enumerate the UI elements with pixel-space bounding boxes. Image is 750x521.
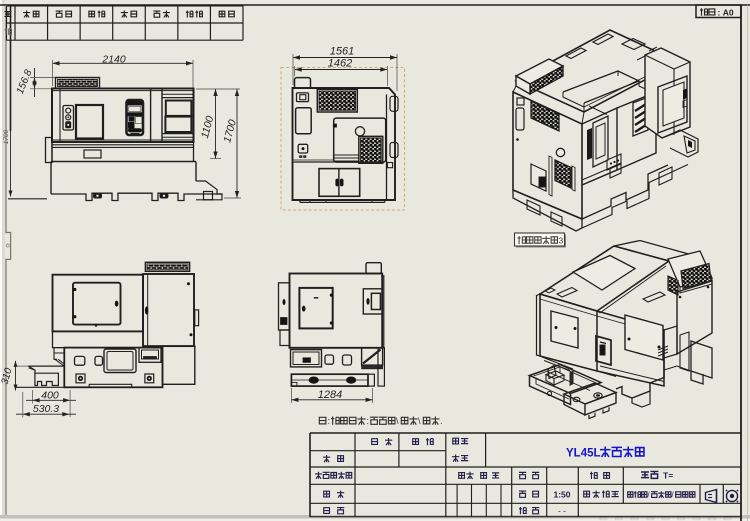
svg-text:1284: 1284 <box>318 389 342 401</box>
svg-text:3: 3 <box>559 236 564 246</box>
svg-text:1561: 1561 <box>330 46 354 58</box>
svg-text:1:50: 1:50 <box>553 489 570 499</box>
svg-text:400: 400 <box>41 389 59 401</box>
svg-text:.: . <box>440 416 443 426</box>
svg-text:YL45L: YL45L <box>566 448 601 460</box>
svg-text:530.3: 530.3 <box>33 403 59 415</box>
svg-text:1462: 1462 <box>328 58 352 70</box>
svg-text:- -: - - <box>558 506 566 516</box>
svg-text:: A0: : A0 <box>718 7 734 17</box>
svg-text:2140: 2140 <box>101 53 126 65</box>
svg-text:1700: 1700 <box>3 129 10 144</box>
svg-text:T=: T= <box>663 470 673 480</box>
svg-text::: : <box>367 416 370 426</box>
svg-text::: : <box>328 416 331 426</box>
